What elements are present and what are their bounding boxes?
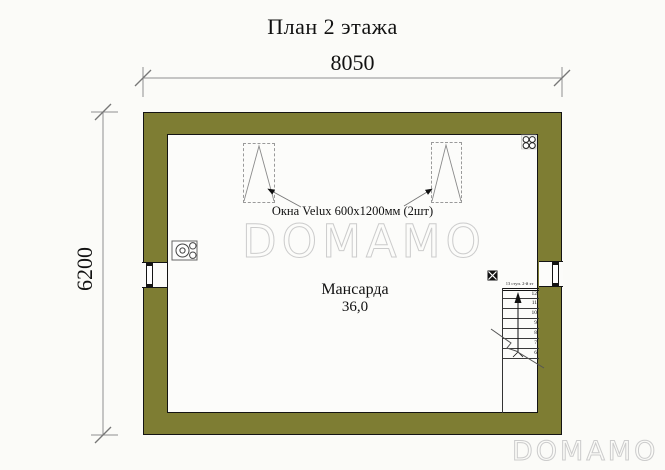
window-jamb-icon	[146, 262, 153, 266]
stair-tread	[503, 318, 539, 319]
plan-title: План 2 этажа	[0, 14, 665, 40]
stairs-note: 13 ступ. 2-й эт	[501, 281, 538, 287]
dimension-width-label: 8050	[143, 50, 562, 76]
room-label: Мансарда 36,0	[255, 281, 455, 315]
velux-annotation: Окна Velux 600х1200мм (2шт)	[200, 204, 505, 219]
stair-tread	[503, 358, 539, 359]
roof-window-1	[243, 143, 275, 203]
watermark-corner: DOMAMO	[512, 436, 658, 467]
roof-window-2	[431, 142, 462, 203]
attic-floor-area	[167, 134, 538, 413]
room-name: Мансарда	[255, 281, 455, 299]
watermark-center: DOMAMO	[242, 215, 486, 268]
stair-step-number: 6	[525, 350, 537, 356]
window-frame-right	[552, 261, 559, 287]
stair-step-number: 8	[525, 330, 537, 336]
window-jamb-icon	[146, 284, 153, 288]
stair-tread	[503, 348, 539, 349]
stair-step-number: 9	[525, 320, 537, 326]
stair-step-number: 7	[525, 340, 537, 346]
floorplan-canvas: План 2 этажа 8050 6200 DOMAMO DOMAMO 12 …	[0, 0, 665, 470]
stair-tread	[503, 328, 539, 329]
staircase: 12 11 10 9 8 7 6	[502, 288, 539, 413]
window-opening-right	[539, 261, 563, 287]
stair-step-number: 12	[525, 291, 537, 297]
stair-tread	[503, 338, 539, 339]
window-jamb-icon	[552, 261, 559, 265]
dimension-height-label: 6200	[72, 224, 98, 314]
window-jamb-icon	[552, 283, 559, 287]
stair-step-number: 10	[525, 310, 537, 316]
stair-tread	[503, 298, 539, 299]
stair-tread	[503, 308, 539, 309]
stair-step-number: 11	[525, 300, 537, 306]
room-area: 36,0	[255, 299, 455, 316]
window-frame-left	[146, 262, 153, 288]
